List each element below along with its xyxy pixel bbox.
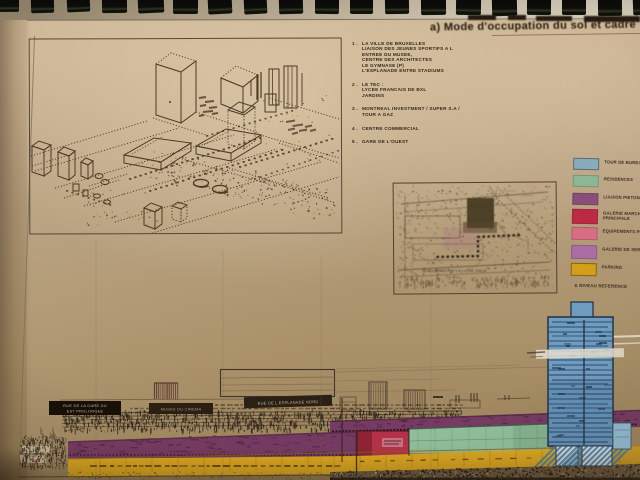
svg-text:EST PROLONGEE: EST PROLONGEE bbox=[67, 409, 104, 414]
svg-text:MUSEE DU CINEMA: MUSEE DU CINEMA bbox=[161, 407, 202, 412]
svg-text:RUE DE LA GARE DU: RUE DE LA GARE DU bbox=[63, 403, 107, 408]
